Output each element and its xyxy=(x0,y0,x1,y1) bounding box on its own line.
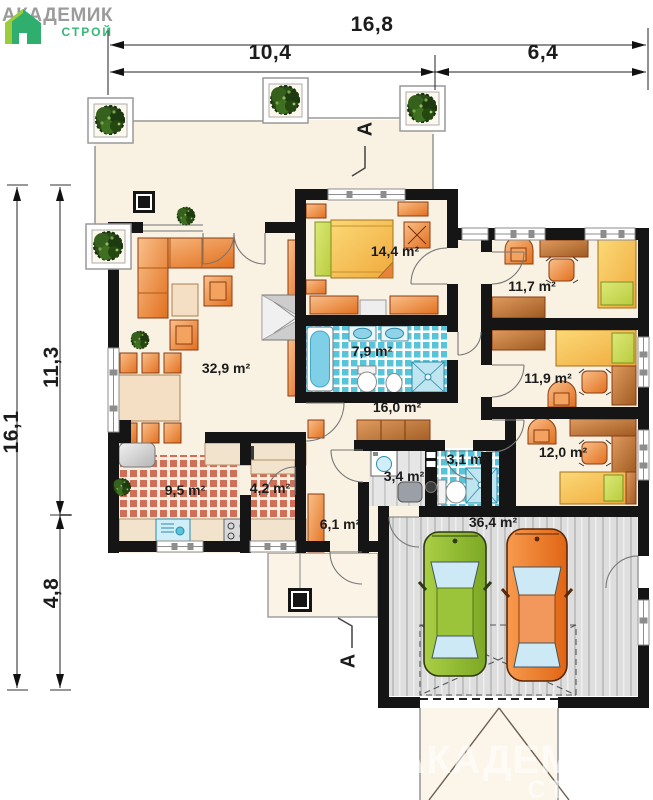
dimension-left-lower: 4,8 xyxy=(40,578,64,609)
section-mark-top: A xyxy=(355,122,378,136)
room-label-hall: 16,0 m² xyxy=(373,399,421,415)
logo: АКАДЕМИК СТРОЙ xyxy=(2,6,117,38)
dimension-top-right: 6,4 xyxy=(528,41,559,65)
dimension-left-upper: 11,3 xyxy=(40,346,64,388)
room-label-room1: 11,7 m² xyxy=(508,278,555,294)
logo-sub: СТРОЙ xyxy=(62,26,114,38)
floor-plan-drawing xyxy=(0,0,653,800)
room-label-garage: 36,4 m² xyxy=(469,514,517,530)
section-mark-bottom: A xyxy=(338,654,361,668)
room-label-kitchen: 9,5 m² xyxy=(165,482,205,498)
car-green xyxy=(419,532,491,676)
dimension-top-total: 16,8 xyxy=(351,13,394,37)
room-label-utility: 3,4 m² xyxy=(384,468,424,484)
floor-plan-page: АКАДЕМИК СТРОЙ 16,8 10,4 6,4 16,1 11,3 4… xyxy=(0,0,653,800)
car-orange xyxy=(502,529,572,681)
room-label-entry: 6,1 m² xyxy=(320,516,360,532)
room-label-pantry: 4,2 m² xyxy=(250,480,290,496)
dimension-left-total: 16,1 xyxy=(0,411,24,454)
room-label-bathroom-main: 7,9 m² xyxy=(352,343,392,359)
room-label-bedroom: 14,4 m² xyxy=(371,243,419,259)
dimension-top-left: 10,4 xyxy=(249,41,292,65)
room-label-living: 32,9 m² xyxy=(202,360,250,376)
room-label-room2: 11,9 m² xyxy=(524,370,571,386)
room-label-bathroom-small: 3,1 m² xyxy=(447,451,487,467)
porch xyxy=(268,553,378,617)
driveway xyxy=(420,708,569,800)
room-label-room3: 12,0 m² xyxy=(539,444,587,460)
